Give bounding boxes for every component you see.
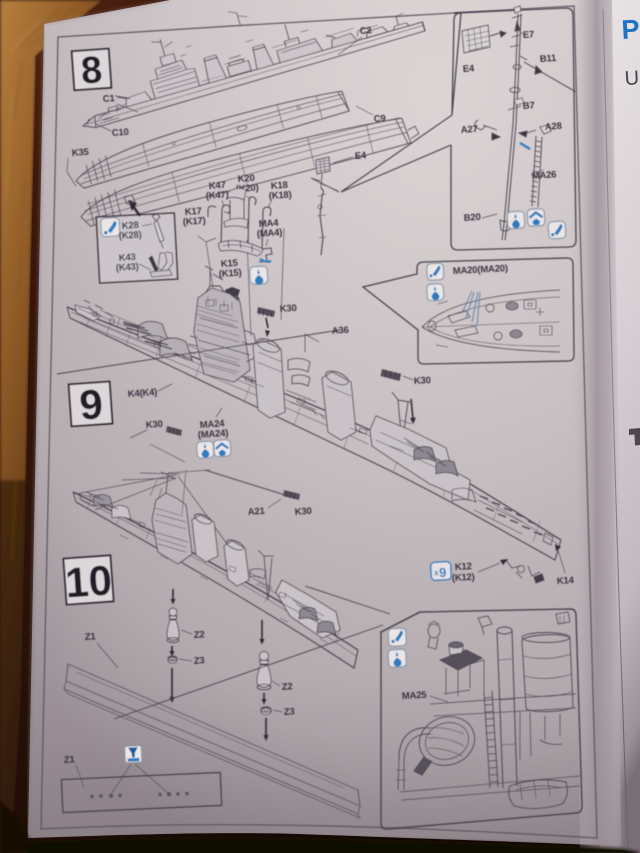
svg-text:U: U [624,67,640,90]
svg-text:P: P [621,14,640,45]
svg-text:E4: E4 [354,150,367,162]
svg-text:C2: C2 [359,25,371,37]
svg-text:B7: B7 [522,100,534,112]
svg-text:C1: C1 [102,93,115,105]
svg-text:(MA4): (MA4) [256,227,282,240]
svg-text:A21: A21 [247,506,265,518]
svg-text:K30: K30 [145,419,163,431]
svg-text:B20: B20 [463,212,481,224]
svg-text:Z1: Z1 [84,631,96,643]
svg-text:(K47): (K47) [205,189,229,202]
svg-text:(K18): (K18) [268,189,292,202]
svg-text:(K28): (K28) [118,229,142,242]
svg-text:10: 10 [64,556,114,606]
svg-text:Z1: Z1 [63,754,75,766]
svg-text:(K17): (K17) [182,215,206,228]
svg-text:A27: A27 [460,124,478,136]
svg-text:(K43): (K43) [115,261,139,274]
svg-text:(MA24): (MA24) [197,428,228,441]
svg-text:A36: A36 [331,325,349,337]
svg-text:K4(K4): K4(K4) [127,387,157,400]
svg-text:Z3: Z3 [283,706,294,718]
svg-text:Z2: Z2 [281,681,292,693]
svg-text:K14: K14 [557,575,575,587]
svg-text:(K15): (K15) [218,267,242,280]
svg-text:Z3: Z3 [193,655,204,667]
svg-text:8: 8 [80,49,104,92]
svg-text:A28: A28 [544,121,562,133]
svg-text:K35: K35 [71,147,89,159]
svg-text:E4: E4 [462,63,475,75]
svg-text:E7: E7 [522,29,534,41]
svg-text:MA25: MA25 [402,690,428,702]
svg-text:(K12): (K12) [452,572,475,584]
svg-text:B11: B11 [539,53,557,65]
svg-text:K30: K30 [279,303,297,315]
svg-text:MA26: MA26 [531,169,556,182]
svg-text:C10: C10 [111,127,129,139]
svg-text:9: 9 [78,380,105,429]
svg-text:Z2: Z2 [193,629,204,641]
svg-text:9: 9 [439,565,447,580]
svg-text:K30: K30 [414,375,431,387]
svg-text:K30: K30 [294,506,312,518]
